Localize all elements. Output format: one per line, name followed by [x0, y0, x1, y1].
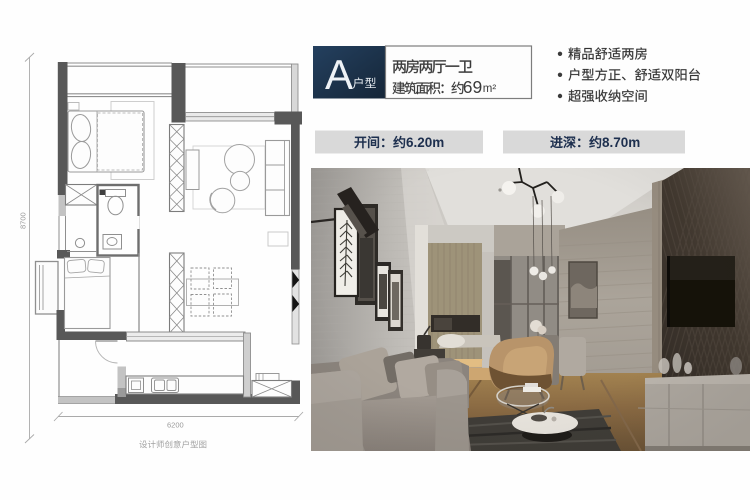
svg-text:8.70m: 8.70m — [602, 135, 640, 150]
svg-text:6.20m: 6.20m — [406, 135, 444, 150]
svg-text:6200: 6200 — [167, 421, 184, 430]
svg-text:A: A — [325, 51, 353, 98]
svg-text:8700: 8700 — [19, 212, 28, 229]
svg-text:m²: m² — [483, 83, 497, 95]
svg-text:69: 69 — [463, 77, 482, 97]
